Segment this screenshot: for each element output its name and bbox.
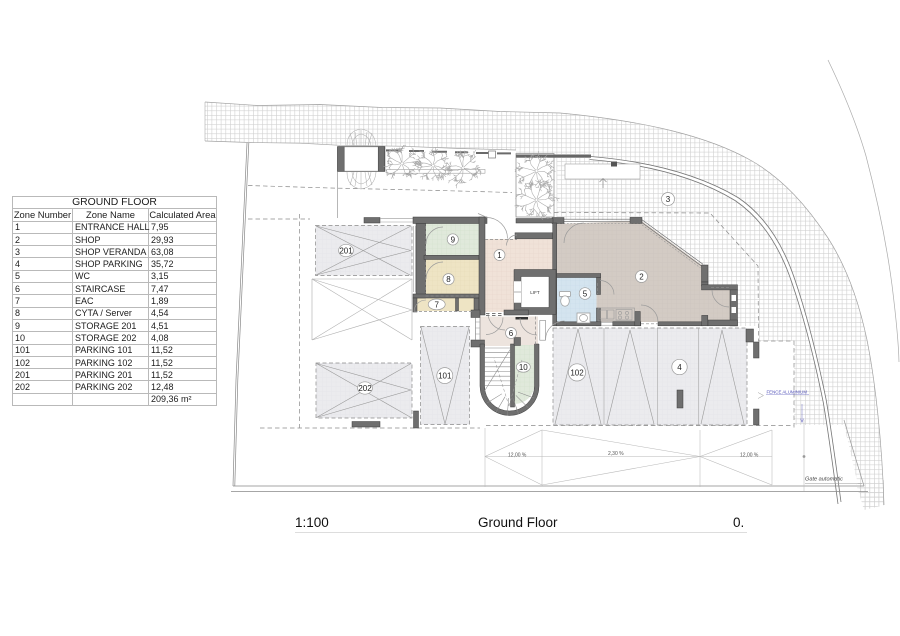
svg-text:202: 202 [358,384,372,393]
svg-text:LIFT: LIFT [530,290,540,295]
svg-text:9: 9 [451,235,456,244]
svg-text:101: 101 [438,372,452,381]
svg-text:8: 8 [446,275,451,284]
svg-text:4: 4 [677,363,682,372]
svg-text:Gate automatic: Gate automatic [805,477,843,483]
svg-text:5: 5 [583,290,588,299]
svg-text:7: 7 [434,300,439,309]
svg-text:10: 10 [519,363,528,372]
svg-text:3: 3 [666,195,671,204]
svg-text:102: 102 [570,368,584,377]
svg-text:1: 1 [497,251,502,260]
svg-text:2,30 %: 2,30 % [608,451,624,457]
svg-text:FENCE ALUMINIUM: FENCE ALUMINIUM [767,390,808,395]
svg-text:12,00 %: 12,00 % [740,453,759,459]
svg-text:12,00 %: 12,00 % [508,453,527,459]
svg-text:6: 6 [509,329,514,338]
svg-text:201: 201 [339,247,353,256]
svg-text:2: 2 [639,273,644,282]
